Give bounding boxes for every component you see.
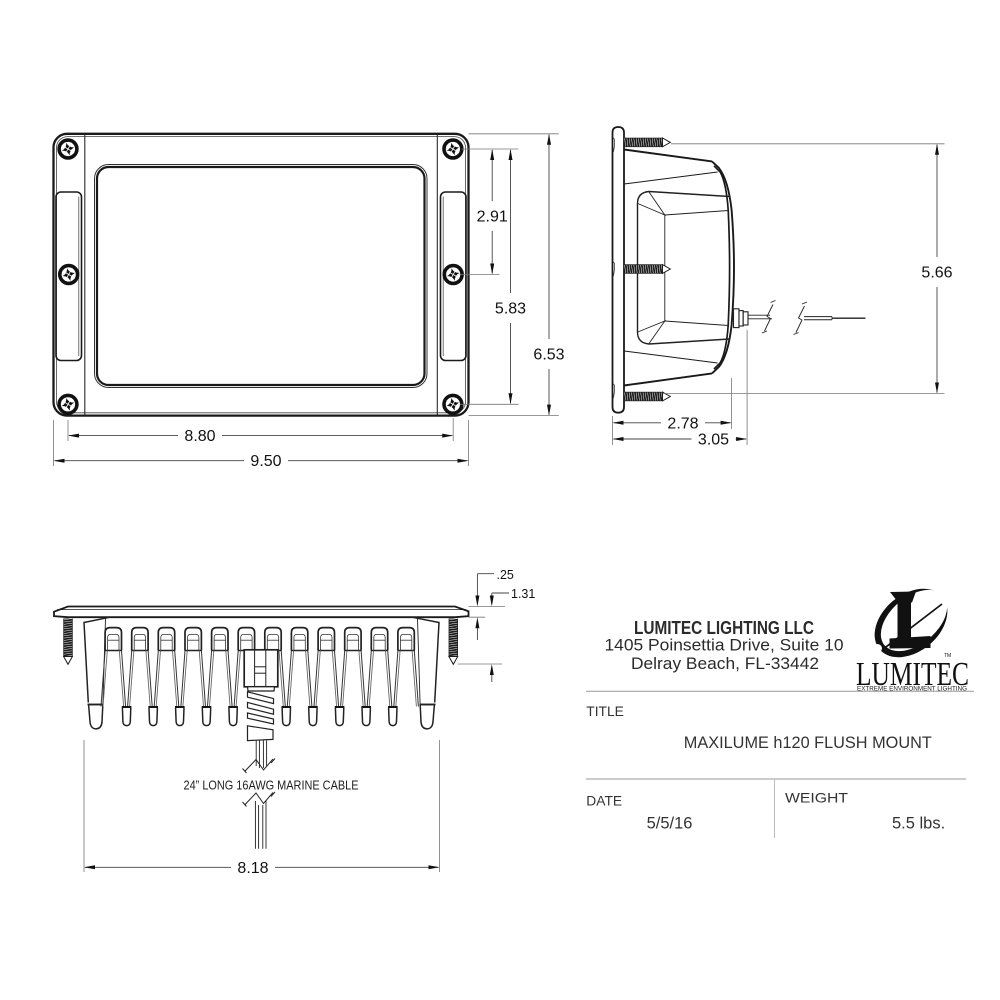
svg-text:8.18: 8.18	[237, 860, 268, 877]
svg-text:5/5/16: 5/5/16	[647, 815, 693, 833]
svg-text:DATE: DATE	[586, 794, 622, 809]
svg-text:5.83: 5.83	[495, 301, 526, 318]
svg-text:2.91: 2.91	[477, 209, 508, 226]
svg-text:MAXILUME h120 FLUSH MOUNT: MAXILUME h120 FLUSH MOUNT	[684, 733, 932, 752]
svg-text:3.05: 3.05	[698, 432, 729, 449]
svg-text:1.31: 1.31	[511, 587, 535, 601]
svg-text:TITLE: TITLE	[586, 704, 624, 719]
svg-text:2.78: 2.78	[667, 415, 698, 432]
svg-text:LUMITEC LIGHTING LLC: LUMITEC LIGHTING LLC	[634, 617, 814, 638]
svg-text:5.5 lbs.: 5.5 lbs.	[892, 815, 945, 833]
svg-text:TM: TM	[944, 653, 951, 659]
svg-text:Delray Beach, FL-33442: Delray Beach, FL-33442	[631, 654, 819, 673]
svg-text:5.66: 5.66	[921, 265, 952, 282]
svg-text:8.80: 8.80	[184, 428, 215, 445]
svg-text:9.50: 9.50	[250, 453, 281, 470]
svg-text:.25: .25	[497, 568, 514, 582]
svg-text:1405 Poinsettia Drive, Suite 1: 1405 Poinsettia Drive, Suite 10	[605, 636, 844, 655]
svg-text:6.53: 6.53	[533, 347, 564, 364]
svg-text:WEIGHT: WEIGHT	[785, 791, 849, 806]
svg-text:24” LONG 16AWG MARINE CABLE: 24” LONG 16AWG MARINE CABLE	[184, 778, 359, 793]
